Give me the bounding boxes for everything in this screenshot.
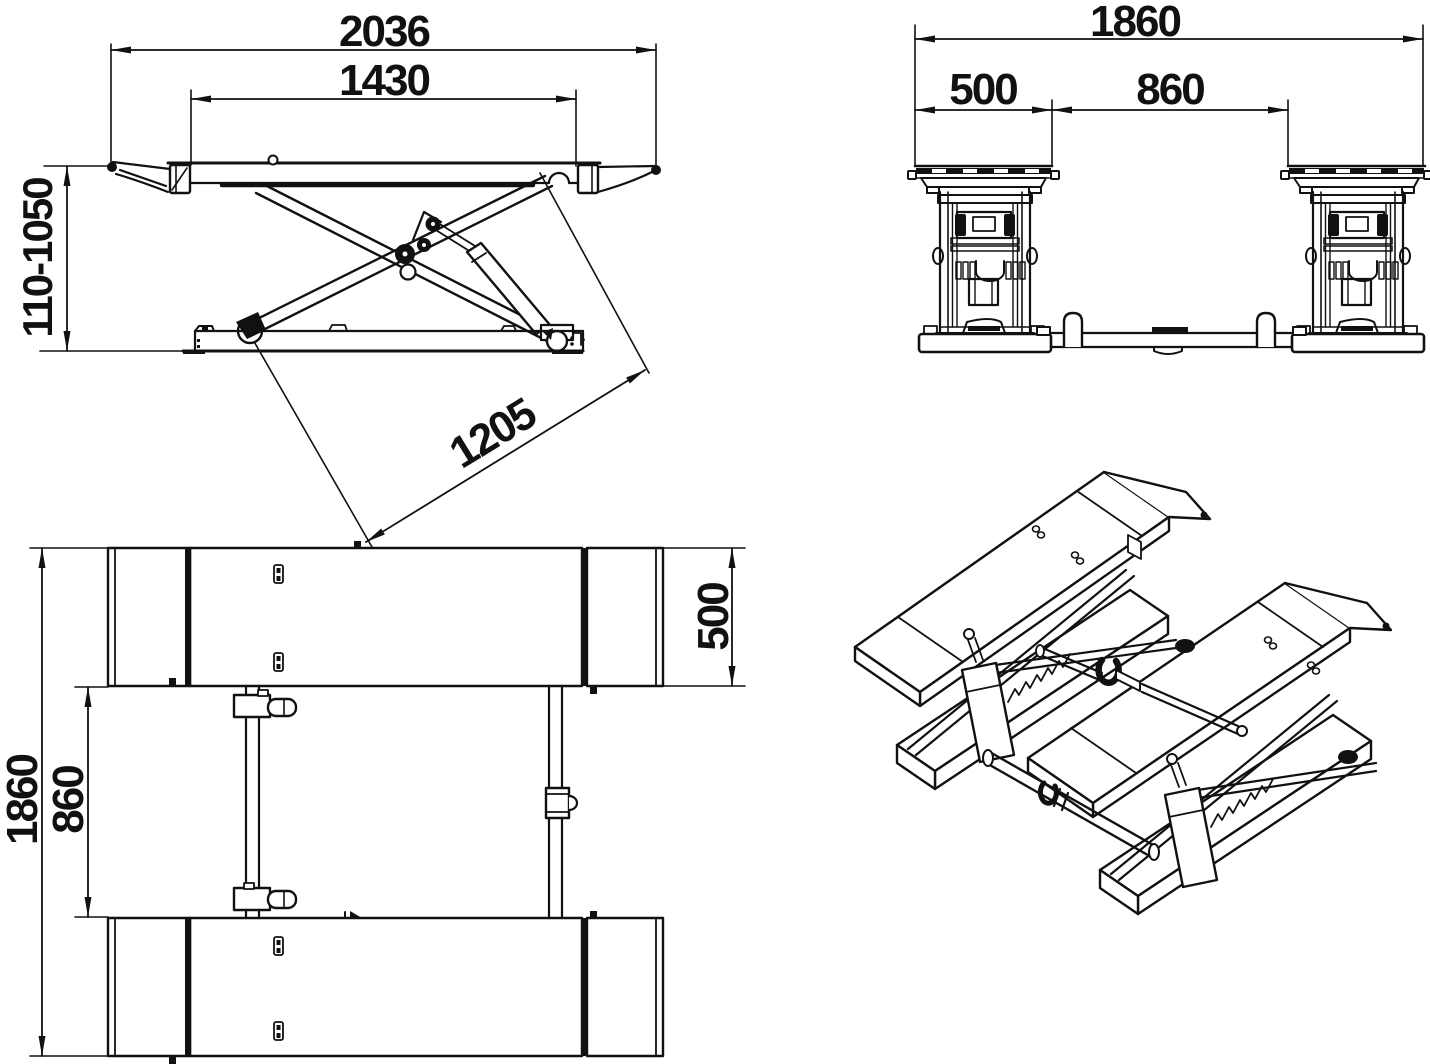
plan-view: 1860 860 500 — [0, 541, 745, 1064]
plan-runway-top — [108, 541, 663, 686]
front-view: 1860 500 860 — [908, 0, 1430, 354]
side-dimension-lines — [67, 50, 656, 542]
isometric-view — [855, 472, 1391, 914]
dim-plan-between-runways: 860 — [44, 766, 93, 834]
torsion-joint-right — [1257, 313, 1275, 347]
side-extension-lines — [40, 44, 656, 547]
side-scissor — [236, 176, 584, 351]
torsion-joint-left — [1064, 313, 1082, 347]
technical-drawing-page: 2036 1430 110-1050 1205 — [0, 0, 1430, 1064]
dim-between-runways: 860 — [1136, 65, 1204, 114]
dim-plan-runway-width: 500 — [689, 583, 738, 651]
dim-runway-width: 500 — [949, 65, 1017, 114]
side-platform — [107, 156, 661, 194]
side-view: 2036 1430 110-1050 1205 — [14, 7, 661, 547]
dim-plan-overall-width: 1860 — [0, 755, 47, 845]
scissor-lift-drawing: 2036 1430 110-1050 1205 — [0, 0, 1430, 1064]
dim-lifting-height: 110-1050 — [14, 178, 61, 338]
dim-runway-length: 1430 — [339, 56, 429, 105]
plan-connecting-rods — [234, 686, 597, 918]
dim-overall-width: 1860 — [1090, 0, 1180, 46]
side-arrowheads — [64, 47, 657, 545]
right-ramp-pin — [651, 165, 661, 175]
dim-overall-length: 2036 — [339, 7, 429, 56]
plan-runway-bottom — [108, 911, 663, 1064]
left-ramp-pin — [107, 162, 117, 172]
